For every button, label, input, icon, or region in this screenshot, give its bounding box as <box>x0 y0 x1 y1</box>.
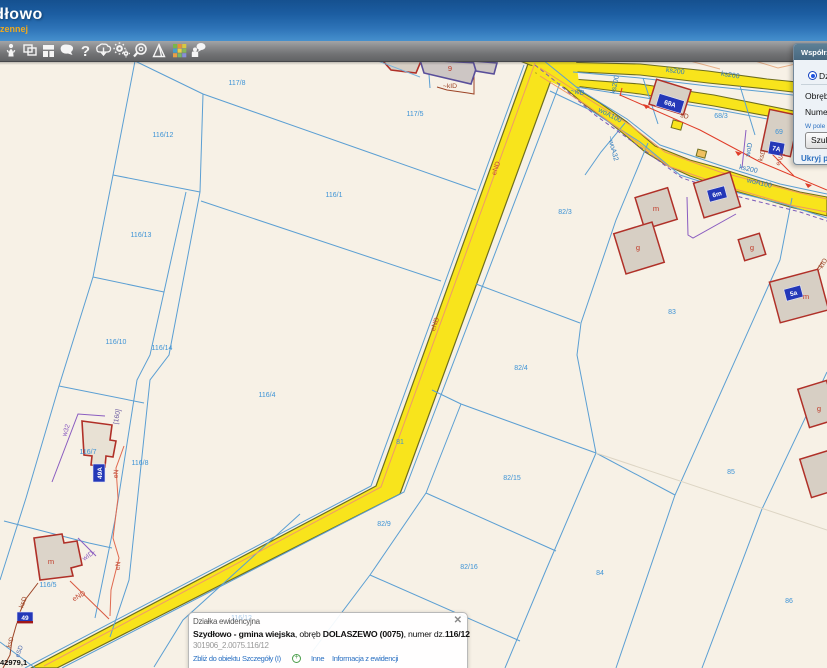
svg-text:m: m <box>48 557 54 566</box>
svg-text:~kID: ~kID <box>443 83 457 90</box>
svg-text:g: g <box>817 404 821 413</box>
svg-text:85: 85 <box>727 469 735 476</box>
svg-text:116/8: 116/8 <box>132 460 149 467</box>
svg-text:83: 83 <box>668 309 676 316</box>
svg-text:116/13: 116/13 <box>131 232 152 239</box>
svg-text:116/14: 116/14 <box>152 345 173 352</box>
svg-text:m: m <box>653 204 659 213</box>
svg-text:81: 81 <box>396 439 404 446</box>
svg-text:86: 86 <box>785 598 793 605</box>
svg-text:69: 69 <box>775 129 783 136</box>
svg-text:117/8: 117/8 <box>229 80 246 87</box>
svg-text:82/16: 82/16 <box>460 564 478 571</box>
svg-text:g: g <box>750 243 754 252</box>
svg-text:116/7: 116/7 <box>80 449 97 456</box>
svg-text:?: ? <box>81 43 90 60</box>
svg-text:49: 49 <box>21 615 29 622</box>
svg-text:117/5: 117/5 <box>407 111 424 118</box>
svg-text:eN: eN <box>113 469 121 478</box>
svg-text:116/1: 116/1 <box>326 192 343 199</box>
svg-text:eN: eN <box>115 561 123 570</box>
svg-text:82/15: 82/15 <box>503 475 521 482</box>
svg-text:9: 9 <box>448 64 452 73</box>
svg-text:82/4: 82/4 <box>514 365 528 372</box>
svg-text:116/4: 116/4 <box>259 392 276 399</box>
svg-text:116/5: 116/5 <box>40 582 57 589</box>
svg-text:116/12: 116/12 <box>153 132 174 139</box>
svg-text:82/3: 82/3 <box>558 209 572 216</box>
svg-text:m: m <box>803 292 809 301</box>
svg-text:116/10: 116/10 <box>106 339 127 346</box>
svg-text:g: g <box>636 243 640 252</box>
svg-text:84: 84 <box>596 570 604 577</box>
svg-text:68/3: 68/3 <box>714 113 728 120</box>
svg-text:82/9: 82/9 <box>377 521 391 528</box>
svg-text:49A: 49A <box>97 467 104 479</box>
